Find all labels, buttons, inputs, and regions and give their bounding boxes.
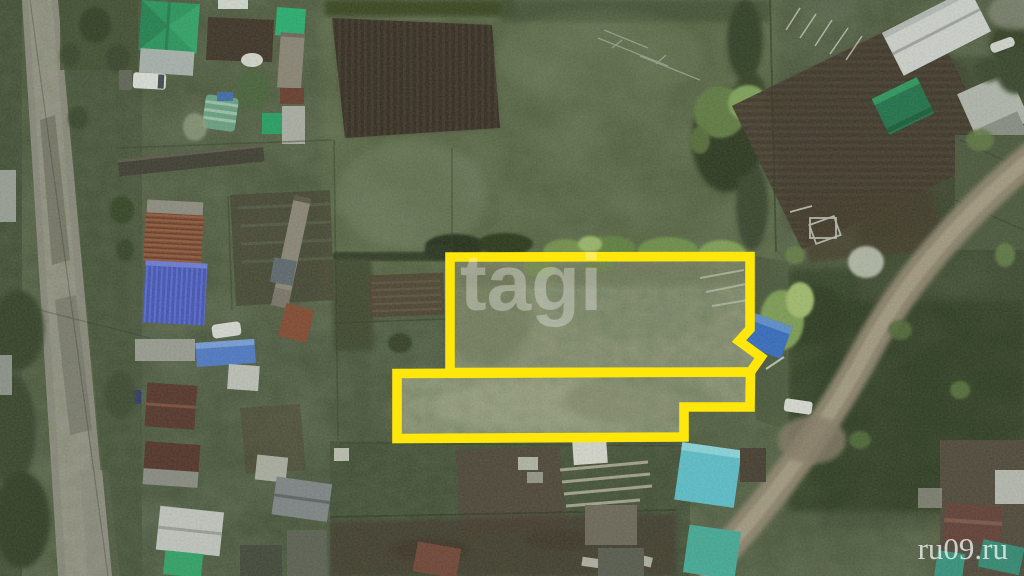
svg-text:tagi: tagi bbox=[460, 238, 602, 327]
svg-text:ru09.ru: ru09.ru bbox=[918, 531, 1008, 566]
